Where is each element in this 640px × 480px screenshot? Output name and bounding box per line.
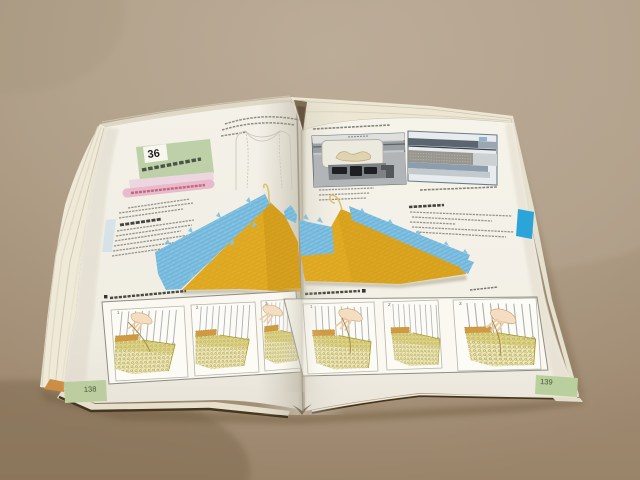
svg-text:139: 139: [540, 377, 553, 387]
svg-text:36: 36: [147, 148, 161, 161]
svg-text:138: 138: [84, 384, 97, 394]
